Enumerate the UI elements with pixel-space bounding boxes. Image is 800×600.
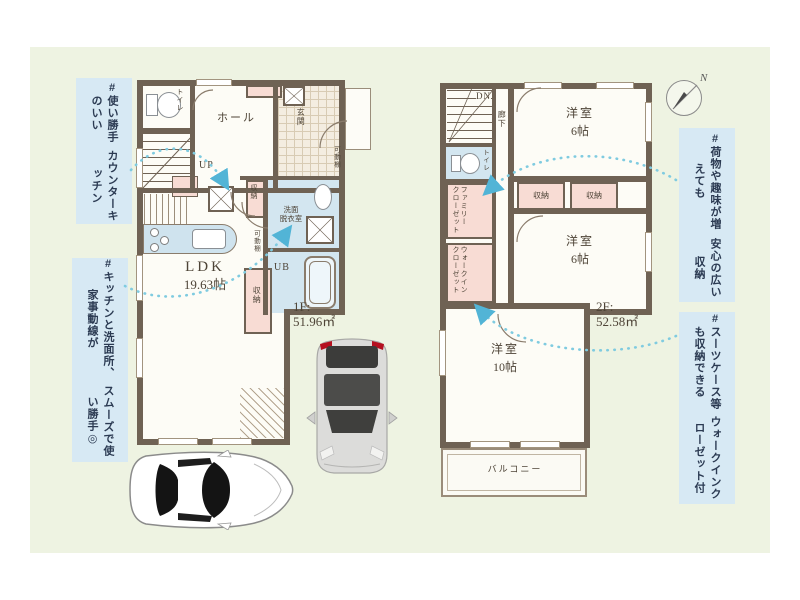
family-closet-label: ファミリー クローゼット [452,186,468,236]
1f-floor-area: 51.96㎡ [293,314,335,329]
2f-floor-lower [443,312,587,445]
1f-wall-top [137,80,345,86]
room-label-hall: ホール [217,112,256,125]
shelf-label-1: 可動棚 [332,146,339,180]
1f-wall-wash-left [263,178,268,315]
room-label-bedroom3: 洋室 10帖 [470,340,540,377]
2f-wall-room3-top [440,303,590,309]
1f-area-label: 1F: 51.96㎡ [293,300,335,330]
room-label-washroom: 洗面 脱衣室 [276,206,306,223]
kitchen-sink [192,229,226,249]
annotation-wic-line1: #スーツケース等も収納できる [691,312,723,412]
stove-burner [150,243,159,252]
2f-wall-stairs-bottom [440,143,496,147]
2f-wall-corridor-right [508,83,514,309]
room-label-bedroom2: 洋室 6帖 [545,232,615,269]
annotation-wic-line2: ウォークインクローゼット付 [691,412,723,504]
annotation-storage: #荷物や趣味が増えても 安心の広い収納 [679,128,735,302]
fixture-box [283,86,305,106]
room-label-corridor: 廊下 [497,110,506,144]
stove-burner [150,228,159,237]
kitchen-shelf-lines [144,194,188,224]
wic-line1: ウォークイン [460,246,468,294]
1f-wall-right-upper [339,80,345,315]
room-label-ub: UB [274,262,290,274]
annotation-flow: #キッチンと洗面所、家事動線が スムーズで使い勝手◎ [72,258,128,462]
room-label-ldk: LDK 19.63帖 [160,258,250,295]
annotation-counter-kitchen-line2: カウンターキッチン [88,147,120,224]
1f-wall-wash-top [240,176,339,180]
2f-wall-left [440,83,446,448]
window [439,330,446,376]
storage-ldk-label: 収納 [252,286,261,318]
bedroom2-name: 洋室 [566,234,594,248]
window [470,441,510,448]
1f-wall-ub-top [268,248,339,252]
shelf-label-2: 可動棚 [252,230,259,266]
stove-burner [160,236,169,245]
1f-wall-toilet [137,128,195,133]
2f-area-label: 2F: 52.58㎡ [596,300,638,330]
family-closet-line1: ファミリー [460,186,468,226]
window [136,338,143,378]
room-label-entrance: 玄関 [296,108,305,142]
walk-in-closet-label: ウォークイン クローゼット [452,246,468,300]
2f-wall-closet-bottom [508,208,652,214]
window [136,255,143,301]
bedroom1-name: 洋室 [566,106,594,120]
ldk-size: 19.63帖 [184,277,226,292]
window [158,438,198,445]
storage-mid-label: 収納 [250,184,258,216]
stairs-dn-label: DN [476,91,491,101]
window [645,232,652,272]
2f-floor-name: 2F: [596,299,613,314]
2f-wall-right-lower [584,309,590,448]
annotation-storage-line2: 安心の広い収納 [691,235,723,302]
washroom-line2: 脱衣室 [280,214,303,223]
car-1-graphic [126,450,296,530]
family-closet-line2: クローゼット [452,186,460,234]
car-2-graphic [304,336,400,476]
fixture-box [208,186,234,212]
balcony-label: バルコニー [470,464,560,474]
annotation-counter-kitchen-line1: #使い勝手のいい [88,78,120,147]
2f-wall-toilet-bottom [440,179,496,183]
compass-icon [666,80,702,116]
washing-machine [306,216,334,244]
2f-wall-corridor-left [492,83,496,309]
window [136,148,143,188]
closet-1-label: 収納 [517,191,565,200]
window [596,82,634,89]
compass-north-label: N [700,72,707,85]
window [645,102,652,142]
porch [345,88,371,150]
1f-wall-stair-right [190,80,195,192]
1f-wall-right-lower [284,309,290,445]
bedroom2-size: 6帖 [571,252,589,266]
window [520,441,560,448]
1f-floor-name: 1F: [293,299,310,314]
car-top-view-horizontal [126,450,296,535]
annotation-storage-line1: #荷物や趣味が増えても [691,128,723,235]
stairs-up-label: UP [199,160,214,172]
wic-line2: クローゼット [452,246,460,294]
window [196,79,232,86]
annotation-flow-line2: スムーズで使い勝手◎ [84,380,116,462]
room-label-bedroom1: 洋室 6帖 [545,104,615,141]
annotation-counter-kitchen: #使い勝手のいい カウンターキッチン [76,78,132,224]
bedroom3-name: 洋室 [491,342,519,356]
window [212,438,252,445]
bathroom-sink [314,184,332,210]
bedroom1-size: 6帖 [571,124,589,138]
annotation-flow-line1: #キッチンと洗面所、家事動線が [84,258,116,380]
room-label-toilet-1f: トイレ [176,88,184,126]
toilet-icon [460,153,480,174]
bedroom3-size: 10帖 [493,360,517,374]
corner-hatch [240,388,284,438]
2f-floor-area: 52.58㎡ [596,314,638,329]
room-label-toilet-2f: トイレ [481,149,488,179]
ldk-name: LDK [185,259,225,275]
2f-wall-bottom [440,442,590,448]
floorplan-image: トイレ UP ホール 玄関 可動棚 収納 洗面 脱衣室 可動棚 UB [0,0,800,600]
closet-2-label: 収納 [570,191,618,200]
window [524,82,562,89]
annotation-wic: #スーツケース等も収納できる ウォークインクローゼット付 [679,312,735,504]
car-top-view-vertical [304,336,400,481]
2f-wall-room1-bottom [508,176,652,182]
